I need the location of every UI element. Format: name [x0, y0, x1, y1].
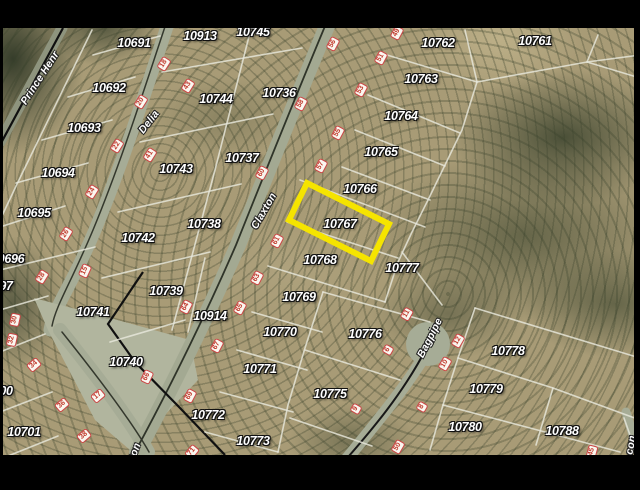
- address-marker-22: 22: [109, 138, 124, 154]
- address-marker-56: 56: [326, 36, 341, 52]
- parcel-label-10737: 10737: [225, 151, 258, 165]
- address-marker-57: 57: [314, 158, 329, 174]
- parcel-label-10742: 10742: [121, 231, 154, 245]
- parcel-label-10738: 10738: [187, 217, 220, 231]
- address-marker-63: 63: [250, 270, 265, 286]
- parcel-label-10761: 10761: [518, 34, 551, 48]
- street-label-delia: Delia: [136, 108, 162, 136]
- parcel-label-10741: 10741: [76, 305, 109, 319]
- map-root: 1069110913107451076210761106921074410736…: [0, 0, 640, 490]
- address-marker-17: 17: [90, 388, 106, 404]
- parcel-label-10779: 10779: [469, 382, 502, 396]
- parcel-label-10775: 10775: [313, 387, 346, 401]
- label-layer: 1069110913107451076210761106921074410736…: [0, 0, 640, 490]
- parcel-label-10772: 10772: [191, 408, 224, 422]
- address-marker-6: 6: [381, 344, 394, 357]
- letterbox-left: [0, 0, 3, 490]
- address-marker-55: 55: [331, 125, 346, 141]
- letterbox-right: [634, 0, 640, 490]
- address-marker-38: 38: [76, 428, 92, 444]
- address-marker-24: 24: [84, 184, 99, 200]
- parcel-label-10740: 10740: [109, 355, 142, 369]
- parcel-label-0696: 0696: [0, 252, 24, 266]
- parcel-label-10788: 10788: [545, 424, 578, 438]
- parcel-label-10776: 10776: [348, 327, 381, 341]
- address-marker-58: 58: [294, 96, 309, 112]
- letterbox-bottom: [0, 455, 640, 490]
- parcel-label-10771: 10771: [243, 362, 276, 376]
- address-marker-50: 50: [390, 439, 405, 455]
- address-marker-60: 60: [255, 165, 270, 181]
- address-marker-18: 18: [156, 56, 171, 72]
- parcel-label-10691: 10691: [117, 36, 150, 50]
- letterbox-top: [0, 0, 640, 28]
- parcel-label-10692: 10692: [92, 81, 125, 95]
- parcel-label-10739: 10739: [149, 284, 182, 298]
- parcel-label-10701: 10701: [7, 425, 40, 439]
- street-label-claxton: Claxton: [249, 191, 279, 232]
- address-marker-67: 67: [210, 338, 225, 354]
- address-marker-66: 66: [140, 369, 154, 385]
- address-marker-51: 51: [374, 50, 389, 66]
- parcel-label-10766: 10766: [343, 182, 376, 196]
- address-marker-69: 69: [183, 388, 198, 404]
- parcel-label-10770: 10770: [263, 325, 296, 339]
- address-marker-20: 20: [133, 94, 148, 110]
- parcel-label-10769: 10769: [282, 290, 315, 304]
- address-marker-26: 26: [58, 226, 73, 242]
- address-marker-32: 32: [6, 333, 18, 348]
- parcel-label-10768: 10768: [303, 253, 336, 267]
- parcel-label-10695: 10695: [17, 206, 50, 220]
- parcel-label-10765: 10765: [364, 145, 397, 159]
- address-marker-43: 43: [180, 78, 195, 94]
- parcel-label-10763: 10763: [404, 72, 437, 86]
- parcel-label-10778: 10778: [491, 344, 524, 358]
- street-label-prince-henr: Prince Henr: [18, 49, 61, 107]
- parcel-label-10767-highlighted: 10767: [323, 217, 356, 231]
- parcel-label-10744: 10744: [199, 92, 232, 106]
- parcel-label-10736: 10736: [262, 86, 295, 100]
- address-marker-30: 30: [9, 313, 21, 328]
- parcel-label-10780: 10780: [448, 420, 481, 434]
- parcel-label-10913: 10913: [183, 29, 216, 43]
- address-marker-9: 9: [349, 403, 362, 416]
- address-marker-36: 36: [54, 397, 70, 413]
- parcel-label-10743: 10743: [159, 162, 192, 176]
- address-marker-12: 12: [450, 333, 465, 349]
- parcel-label-10914: 10914: [193, 309, 226, 323]
- parcel-label-10693: 10693: [67, 121, 100, 135]
- parcel-label-10773: 10773: [236, 434, 269, 448]
- address-marker-8: 8: [415, 401, 428, 414]
- address-marker-28: 28: [34, 269, 49, 285]
- address-marker-53: 53: [354, 82, 369, 98]
- address-marker-34: 34: [26, 357, 42, 373]
- address-marker-15: 15: [78, 263, 92, 279]
- address-marker-10: 10: [437, 356, 452, 372]
- parcel-label-10764: 10764: [384, 109, 417, 123]
- parcel-label-10762: 10762: [421, 36, 454, 50]
- street-label-bagpipe: Bagpipe: [415, 316, 445, 360]
- parcel-label-10777: 10777: [385, 261, 418, 275]
- address-marker-11: 11: [400, 306, 415, 322]
- address-marker-65: 65: [233, 300, 248, 316]
- address-marker-64: 64: [179, 299, 194, 315]
- address-marker-41: 41: [142, 147, 157, 163]
- parcel-label-10694: 10694: [41, 166, 74, 180]
- address-marker-61: 61: [270, 233, 285, 249]
